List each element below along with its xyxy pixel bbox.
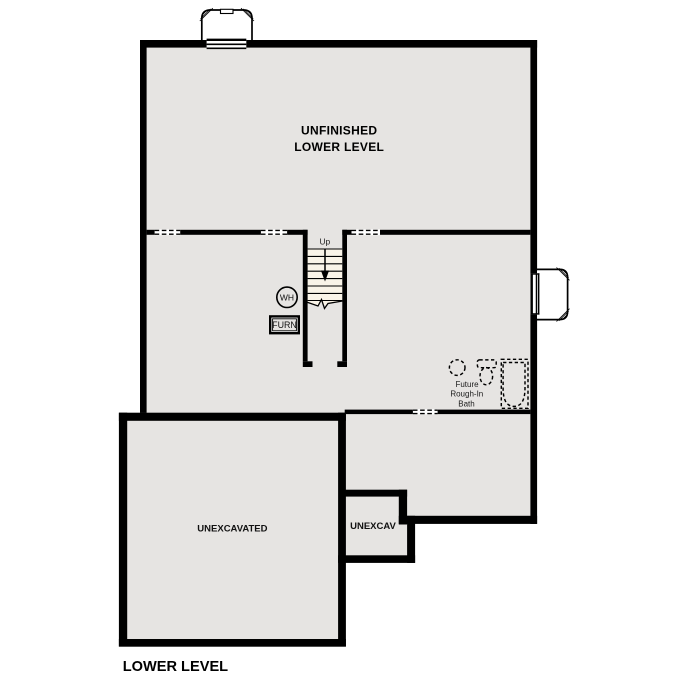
svg-text:WH: WH [280, 292, 294, 302]
svg-text:LOWER LEVEL: LOWER LEVEL [294, 140, 384, 154]
svg-text:Up: Up [319, 236, 330, 246]
svg-text:Future: Future [455, 380, 479, 389]
svg-text:UNFINISHED: UNFINISHED [301, 124, 377, 138]
svg-text:UNEXCAV: UNEXCAV [350, 521, 396, 532]
svg-text:UNEXCAVATED: UNEXCAVATED [197, 523, 267, 534]
svg-text:LOWER LEVEL: LOWER LEVEL [123, 659, 228, 675]
svg-text:Bath: Bath [458, 399, 474, 408]
svg-text:FURN: FURN [272, 320, 297, 330]
svg-text:Rough-In: Rough-In [450, 389, 483, 398]
